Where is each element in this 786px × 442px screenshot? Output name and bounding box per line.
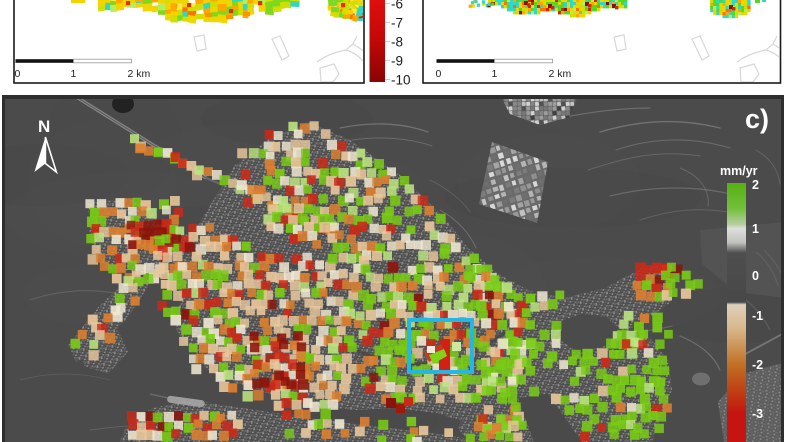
svg-text:2 km: 2 km (128, 68, 151, 80)
svg-text:-3: -3 (752, 407, 763, 421)
svg-text:-6: -6 (391, 0, 403, 12)
svg-text:1: 1 (492, 68, 498, 80)
svg-text:-8: -8 (391, 35, 403, 50)
svg-text:N: N (38, 117, 50, 136)
svg-text:2: 2 (752, 178, 759, 192)
svg-text:0: 0 (752, 269, 759, 283)
svg-text:0: 0 (15, 68, 21, 80)
svg-text:-9: -9 (391, 54, 403, 69)
svg-text:1: 1 (752, 222, 759, 236)
svg-text:-10: -10 (391, 73, 411, 88)
svg-text:-1: -1 (752, 309, 763, 323)
svg-text:0: 0 (436, 68, 442, 80)
svg-text:2 km: 2 km (549, 68, 572, 80)
svg-text:1: 1 (71, 68, 77, 80)
svg-text:-7: -7 (391, 16, 403, 31)
svg-text:-2: -2 (752, 358, 763, 372)
svg-text:mm/yr: mm/yr (720, 164, 758, 178)
svg-text:c): c) (745, 104, 769, 134)
